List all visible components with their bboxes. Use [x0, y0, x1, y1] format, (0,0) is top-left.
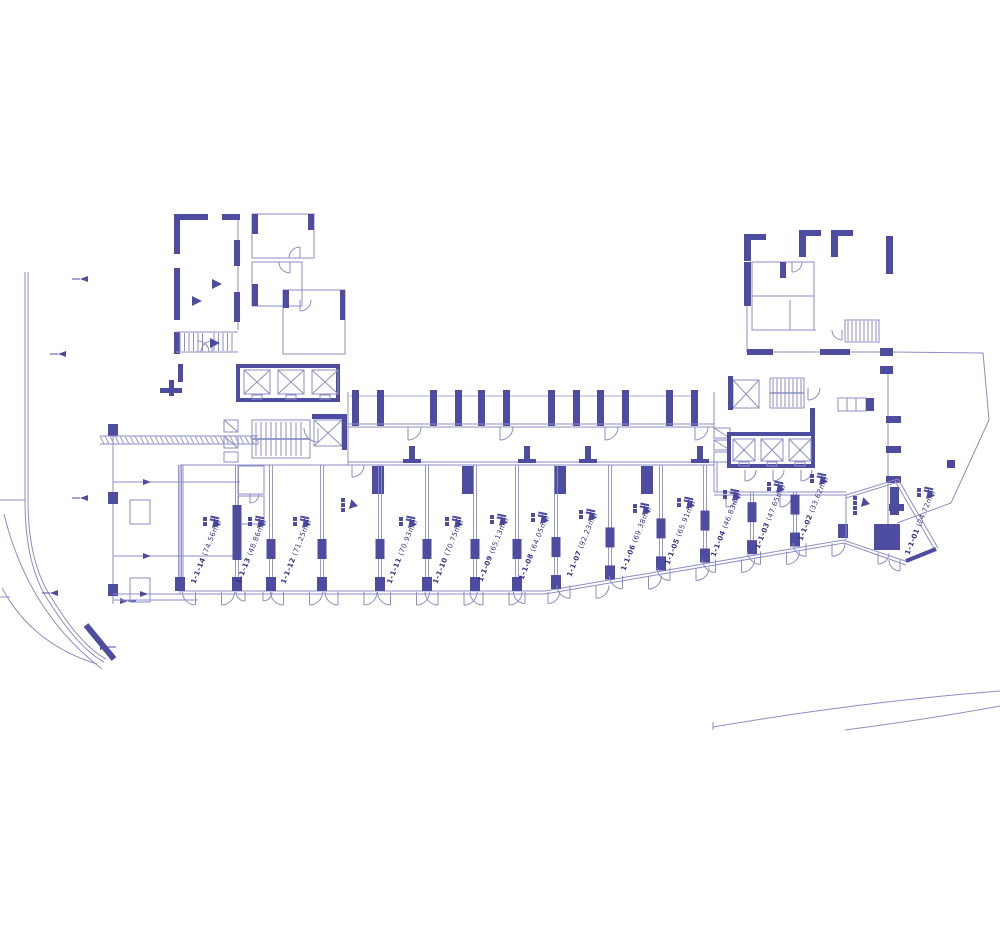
column-icon: [175, 577, 185, 591]
unit-tag-icon: [723, 490, 727, 499]
tick-arrow-icon: [143, 479, 151, 485]
spot-level-marker-icon: [80, 495, 88, 501]
column-icon: [548, 390, 555, 426]
column-icon: [551, 575, 561, 589]
column-icon: [657, 518, 666, 538]
column-icon: [377, 390, 384, 426]
elevator-shaft-icon: [728, 376, 759, 410]
door-arc-icon: [236, 592, 272, 601]
floor-plan-page: 1-1-14 (74.56m²)1-1-13 (48.86m²)1-1-12 (…: [0, 0, 1000, 943]
floor-plan-canvas: [0, 0, 1000, 943]
unit-tag-icon: [248, 517, 252, 526]
column-icon: [478, 390, 485, 426]
column-icon: [462, 466, 474, 494]
spot-level-marker-icon: [120, 598, 128, 604]
column-icon: [471, 539, 480, 559]
spot-level-marker-icon: [80, 276, 88, 282]
column-icon: [503, 390, 510, 426]
column-icon: [372, 466, 384, 494]
unit-tag-icon: [677, 498, 681, 507]
column-icon: [606, 527, 615, 547]
road-edge-lines: [713, 691, 1000, 730]
shops-band: [175, 390, 908, 594]
column-icon: [691, 390, 698, 426]
column-icon: [701, 511, 710, 531]
column-icon: [317, 577, 327, 591]
column-icon: [376, 539, 385, 559]
column-icon: [622, 390, 629, 426]
spot-level-marker-icon: [50, 590, 58, 596]
elevator-shaft-icon: [312, 414, 347, 450]
column-icon: [430, 390, 437, 426]
column-icon: [700, 549, 710, 563]
unit-tag-icon: [490, 515, 494, 524]
left-core: [160, 214, 345, 396]
column-icon: [597, 390, 604, 426]
elevator-shaft-icon: [761, 439, 783, 466]
unit-tag-icon: [531, 513, 535, 522]
elevator-shaft-icon: [733, 439, 755, 466]
column-icon: [573, 390, 580, 426]
unit-tag-icon: [579, 510, 583, 519]
column-icon: [552, 537, 561, 557]
column-icon: [267, 539, 276, 559]
column-icon: [554, 466, 566, 494]
column-icon: [455, 390, 462, 426]
unit-tag-icon: [917, 488, 921, 497]
column-icon: [318, 539, 327, 559]
spot-level-marker-icon: [58, 351, 66, 357]
unit-tag-icon: [767, 482, 771, 491]
column-icon: [352, 390, 359, 426]
tick-arrow-icon: [140, 591, 148, 597]
column-icon: [748, 502, 757, 522]
tick-arrow-icon: [143, 553, 151, 559]
right-stair: [770, 378, 820, 408]
left-small-rooms: [238, 466, 264, 524]
door-arc-icon: [610, 576, 662, 589]
column-icon: [375, 577, 385, 591]
left-utility-stack: [224, 420, 238, 462]
unit-tag-icon: [810, 474, 814, 483]
elevator-shaft-icon: [789, 439, 811, 466]
unit-tag-icon: [293, 517, 297, 526]
left-stair-2: [252, 420, 318, 458]
column-icon: [233, 505, 242, 560]
elevator-shaft-icon: [278, 370, 304, 399]
lobby-tag-icon: [341, 498, 346, 513]
column-icon: [791, 495, 800, 515]
site-boundary-lines: [0, 272, 136, 669]
column-icon: [423, 539, 432, 559]
unit-tag-icon: [203, 517, 207, 526]
unit-tag-icon: [399, 517, 403, 526]
right-core: [744, 230, 893, 374]
unit-tag-icon: [633, 504, 637, 513]
column-icon: [641, 466, 653, 494]
column-icon: [666, 390, 673, 426]
unit-tag-icon: [445, 517, 449, 526]
column-icon: [513, 539, 522, 559]
column-icon: [422, 577, 432, 591]
elevator-shaft-icon: [312, 370, 338, 399]
column-icon: [266, 577, 276, 591]
elevator-shaft-icon: [244, 370, 270, 399]
door-arc-icon: [793, 543, 845, 556]
entrance-tag-icon: [853, 496, 858, 516]
